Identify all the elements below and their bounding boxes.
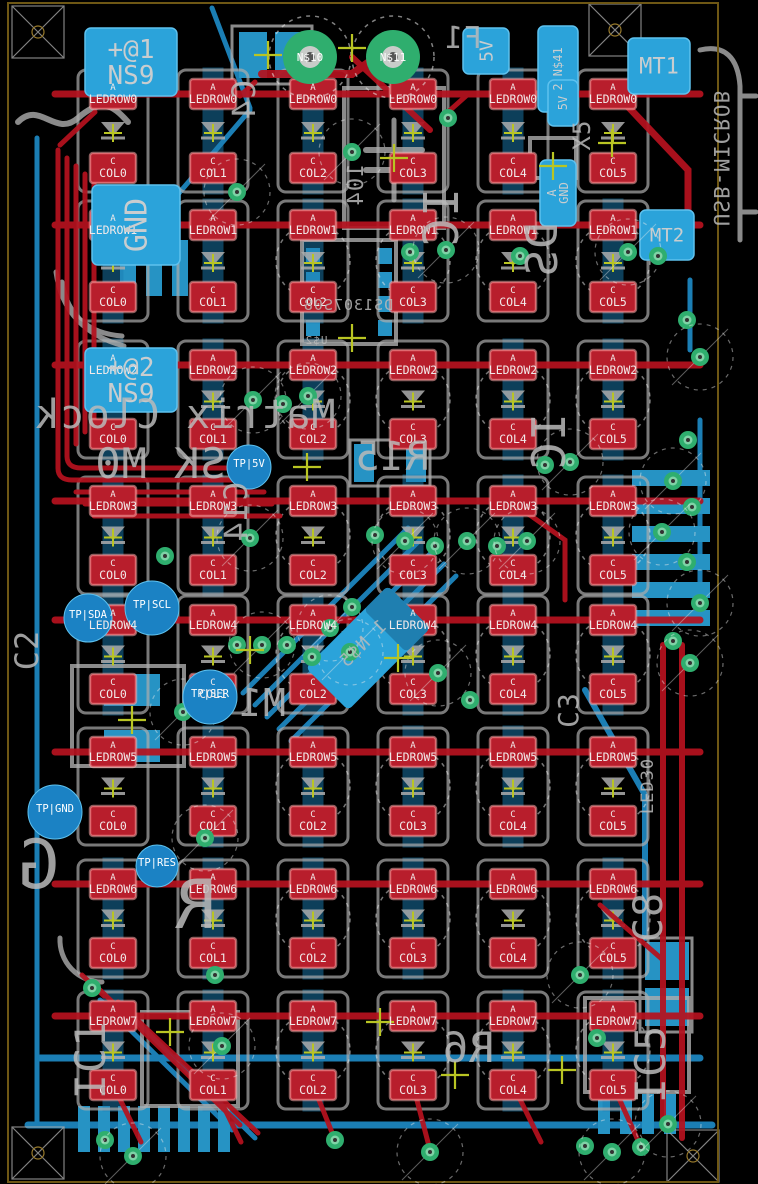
ledrow-label: LEDROW3 [289,499,338,513]
silk-text: Matrix Clock [35,392,336,438]
silk-text: R6 [442,1023,495,1072]
ledrow-label: LEDROW4 [289,618,338,632]
col-label: COL0 [99,951,127,965]
testpoint-label: TP|RES [138,857,176,869]
ledrow-label: LEDROW4 [189,618,238,632]
ledrow-label: LEDROW4 [89,618,138,632]
col-label: COL5 [599,951,627,965]
ledrow-label: LEDROW6 [389,882,438,896]
ledrow-label: LEDROW6 [289,882,338,896]
ledrow-label: LEDROW1 [589,223,638,237]
col-label: COL0 [99,687,127,701]
pad-label-ns41: 2 N$41 [551,47,565,90]
col-label: COL5 [599,295,627,309]
col-label: COL5 [599,166,627,180]
pad-label-mt2: MT2 [650,225,684,247]
ledrow-label: LEDROW0 [489,92,538,106]
ledrow-label: LEDROW4 [489,618,538,632]
col-label: COL3 [399,687,427,701]
silk-text: 104 [344,164,369,207]
col-label: COL1 [199,568,227,582]
silk-text: USB-MICROB [709,90,733,226]
silk-text: U$2 [305,334,328,347]
col-label: COL4 [499,687,527,701]
silk-text: DS1307S08 [303,296,393,314]
hole-label: N$10 [297,51,324,64]
col-label: COL3 [399,951,427,965]
col-label: COL1 [199,819,227,833]
ledrow-label: LEDROW7 [489,1014,538,1028]
silk-text: C2 [8,630,46,671]
col-label: COL4 [499,568,527,582]
ledrow-label: LEDROW2 [489,363,537,377]
silk-text: DS [517,223,568,278]
col-label: COL2 [299,819,327,833]
col-label: COL5 [599,687,627,701]
ledrow-label: LEDROW0 [289,92,338,106]
hole-label: N$11 [380,51,407,64]
col-label: COL2 [299,568,327,582]
fiducial-top-left [12,6,64,58]
pad-label-ns9-1: +@1NS9 [108,35,155,91]
pad-label-mt1: MT1 [639,55,679,80]
ledrow-label: LEDROW7 [389,1014,438,1028]
testpoint-label: TP|GND [36,803,74,815]
col-label: COL4 [499,166,527,180]
ledrow-label: LEDROW3 [89,499,138,513]
ledrow-label: LEDROW5 [289,750,337,764]
ledrow-label: LEDROW1 [289,223,338,237]
silk-text: M1 [238,681,286,725]
ledrow-label: LEDROW3 [489,499,538,513]
ledrow-label: LEDROW5 [589,750,637,764]
col-label: COL0 [99,819,127,833]
ledrow-label: LEDROW0 [589,92,638,106]
col-label: COL4 [499,1083,527,1097]
ledrow-label: LEDROW2 [189,363,237,377]
silk-text: IC1 [66,1021,115,1100]
component-origin-cross-icon [338,324,366,352]
col-label: COL1 [199,166,227,180]
col-label: COL0 [99,295,127,309]
col-label: COL5 [599,819,627,833]
col-label: COL1 [199,951,227,965]
silk-text: C8 [626,892,672,942]
pad-label-gnd: GND [120,198,155,252]
ledrow-label: LEDROW1 [189,223,238,237]
col-label: COL3 [399,819,427,833]
col-label: COL3 [399,166,427,180]
col-label: COL3 [399,568,427,582]
ledrow-label: LEDROW6 [489,882,538,896]
silk-text: F1 [444,21,482,56]
ledrow-label: LEDROW2 [589,363,637,377]
ledrow-label: LEDROW5 [489,750,537,764]
testpoint-label: TP|SCL [133,599,171,611]
ledrow-label: LEDROW4 [389,618,438,632]
col-label: COL1 [199,1083,227,1097]
col-label: COL4 [499,951,527,965]
col-label: COL4 [499,295,527,309]
pad-label-usb-5v: 5V [556,96,570,110]
silk-text: R [174,866,216,945]
col-label: COL5 [599,432,627,446]
ledrow-label: LEDROW6 [89,882,138,896]
col-label: COL0 [99,166,127,180]
col-label: COL2 [299,1083,327,1097]
col-label: COL2 [299,687,327,701]
ledrow-label: LEDROW0 [89,92,138,106]
pcb-canvas: TP|5VTP|SDATP|SCLTP|SERTP|GNDTP|RES ALED… [0,0,758,1184]
silk-text: IC [522,413,576,470]
ledrow-label: LEDROW7 [289,1014,338,1028]
ledrow-label: LEDROW2 [289,363,337,377]
col-label: COL1 [199,295,227,309]
col-label: COL3 [399,295,427,309]
col-label: COL2 [299,166,327,180]
col-label: COL0 [99,568,127,582]
ledrow-label: LEDROW0 [389,92,438,106]
ledrow-label: LEDROW5 [389,750,437,764]
silk-text: IC [414,188,470,248]
col-label: COL5 [599,568,627,582]
silk-text: IC5 [626,1025,675,1104]
ledrow-label: LEDROW4 [589,618,638,632]
silk-text: SK M0 [94,439,225,488]
silk-text: C14 [217,482,255,543]
silk-text: R15 [354,434,429,480]
silk-text: C4 [225,80,263,121]
fiducial-bottom-right [667,1130,719,1182]
ledrow-label: LEDROW3 [589,499,638,513]
testpoint-label: TP|5V [233,458,265,470]
silk-text: X5 [568,120,596,151]
col-label: COL2 [299,951,327,965]
col-label: COL3 [399,1083,427,1097]
col-label: COL5 [599,1083,627,1097]
silk-text: G [17,826,59,905]
col-label: COL1 [199,687,227,701]
silk-text: LED30 [638,758,658,814]
ledrow-label: LEDROW7 [189,1014,238,1028]
ledrow-label: LEDROW3 [389,499,438,513]
component-origin-cross-icon [338,34,366,62]
silk-text: C3 [552,692,585,728]
ledrow-label: LEDROW2 [389,363,437,377]
fiducial-bottom-left [12,1127,64,1179]
ledrow-label: LEDROW5 [89,750,137,764]
pcb-board-view: TP|5VTP|SDATP|SCLTP|SERTP|GNDTP|RES ALED… [0,0,758,1184]
ledrow-label: LEDROW5 [189,750,237,764]
col-label: COL4 [499,819,527,833]
